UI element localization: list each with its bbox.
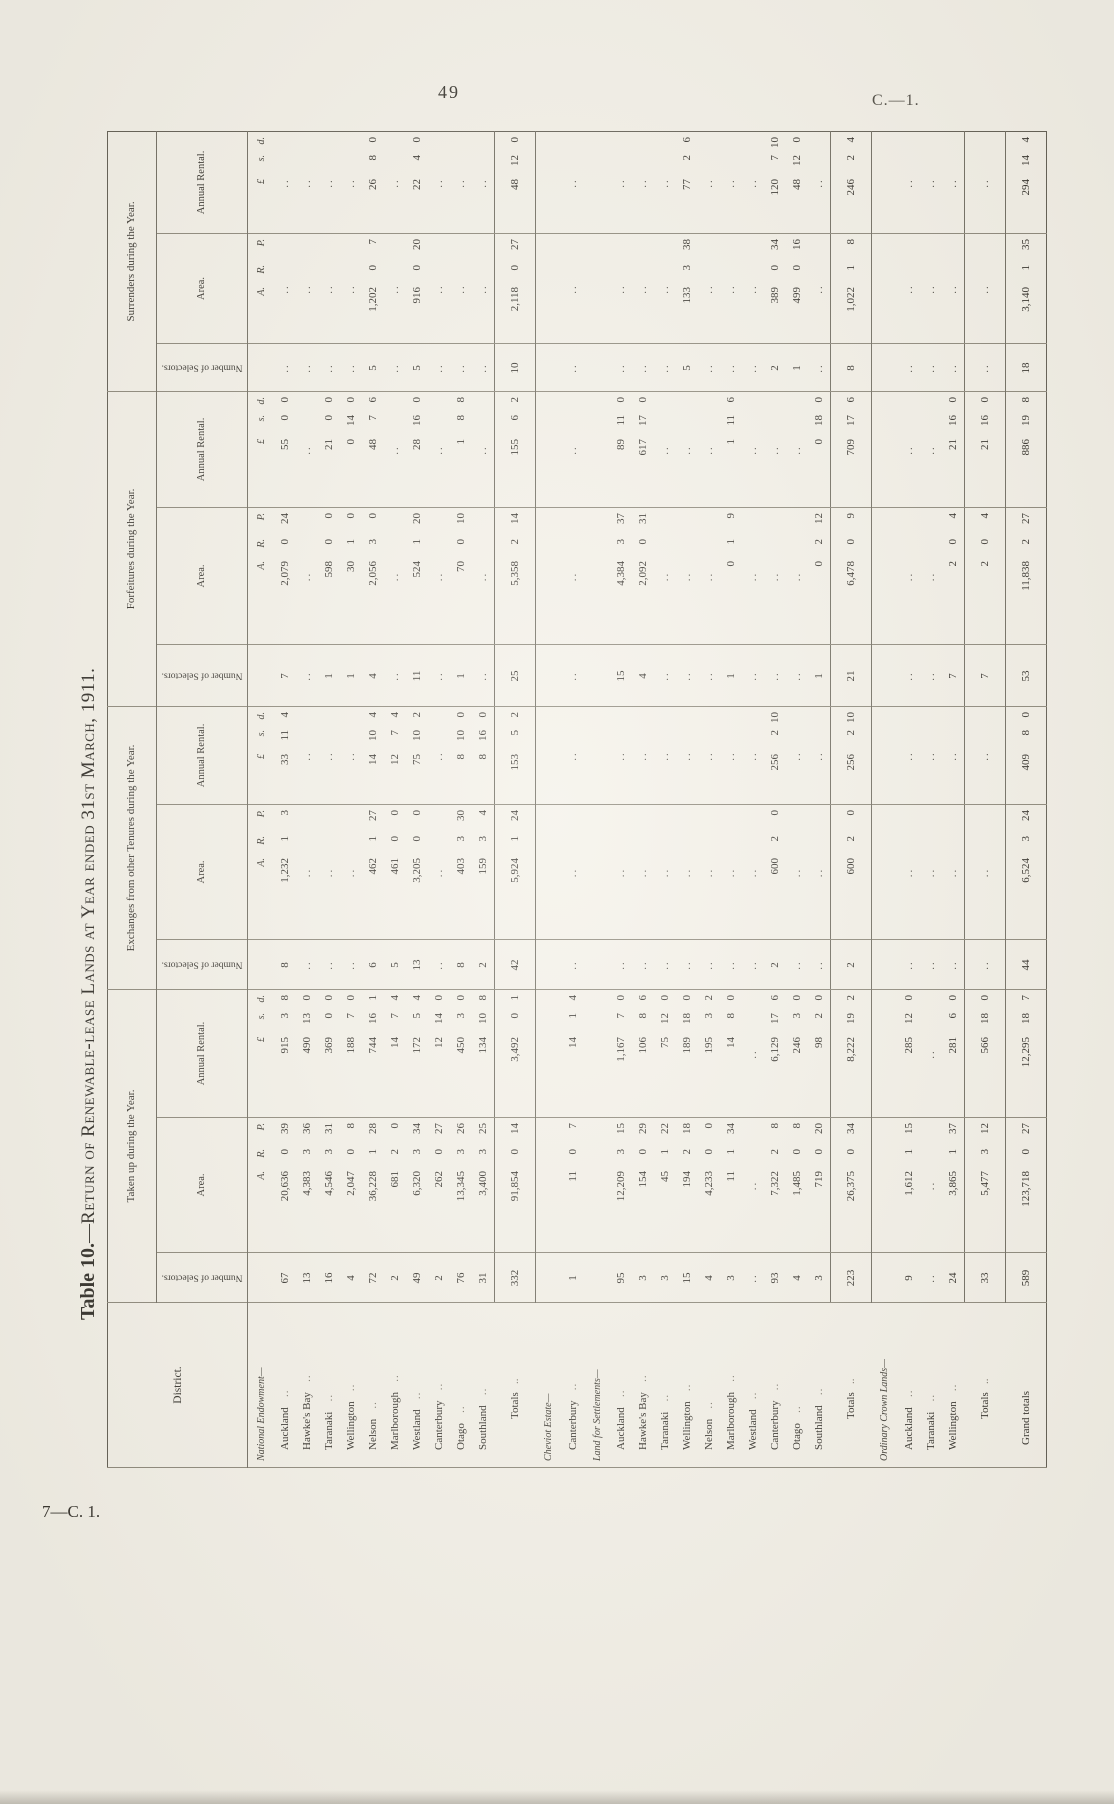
value-part: d. (256, 397, 267, 415)
value-part: 3 (279, 810, 291, 836)
row-label: Canterbury (562, 1303, 584, 1468)
table-cell: .. (742, 939, 764, 989)
value-part: 2 (845, 155, 857, 179)
value-part: 89 (615, 439, 627, 503)
value-part: 1 (367, 1149, 379, 1171)
value-part: 55 (279, 439, 291, 503)
table-cell: .. (786, 507, 808, 644)
vertical-header-text: Number of Selectors. (161, 959, 243, 970)
value-part: 2 (845, 995, 857, 1013)
table-cell: 1,02218 (831, 233, 872, 343)
value-part: 16 (791, 239, 803, 265)
value-part: 27 (433, 1123, 445, 1149)
table-cell (536, 343, 563, 391)
table-cell: .. (920, 939, 942, 989)
table-cell (872, 1253, 899, 1303)
table-cell: 134108 (472, 989, 495, 1117)
empty-cell-dots: .. (433, 810, 445, 935)
value-part: 0 (345, 439, 357, 503)
table-cell: .. (898, 644, 920, 706)
value-part: 7 (1020, 995, 1032, 1013)
table-cell: .. (742, 131, 764, 233)
empty-cell-dots: .. (301, 810, 313, 935)
value-part: 7,322 (769, 1171, 781, 1248)
table-cell (872, 131, 899, 233)
table-cell: 916020 (406, 233, 428, 343)
compound-value: 60020 (845, 810, 857, 935)
value-part: 12 (979, 1123, 991, 1149)
compound-value: 566180 (979, 995, 991, 1113)
table-row: Totals33291,8540143,49201425,92412415352… (495, 131, 536, 1467)
compound-value: 154029 (637, 1123, 649, 1248)
table-cell: .. (428, 391, 450, 507)
empty-cell-dots: .. (769, 650, 781, 702)
value-part: 6 (845, 397, 857, 415)
value-part: 3 (703, 1013, 715, 1037)
value-part: 98 (813, 1037, 825, 1113)
value-part: 0 (979, 397, 991, 415)
table-cell: 20,636039 (274, 1118, 296, 1253)
table-cell: 3 (654, 1253, 676, 1303)
empty-cell-dots: .. (703, 650, 715, 702)
value-part: 48 (509, 179, 521, 229)
value-part: 20 (411, 239, 423, 265)
table-cell: .. (384, 391, 406, 507)
table-cell: 76 (450, 1253, 472, 1303)
value-part: 15 (903, 1123, 915, 1149)
compound-value: 499016 (791, 239, 803, 339)
value-part: 2 (769, 730, 781, 754)
value-part: 14 (345, 415, 357, 439)
table-cell: .. (698, 939, 720, 989)
row-label: Nelson (698, 1303, 720, 1468)
compound-value: 8100 (455, 712, 467, 800)
empty-cell-dots: .. (979, 239, 991, 339)
value-part: 7 (389, 1013, 401, 1037)
value-part: 2,056 (367, 561, 379, 640)
table-cell: 3 (808, 1253, 831, 1303)
compound-value: 134108 (477, 995, 489, 1113)
table-cell: 4,23300 (698, 1118, 720, 1253)
value-part: 4 (367, 712, 379, 730)
value-part: 1 (279, 836, 291, 858)
table-cell: .. (676, 644, 698, 706)
empty-cell-dots: .. (813, 349, 825, 387)
row-label: Southland (472, 1303, 495, 1468)
table-cell: .. (742, 391, 764, 507)
table-cell: .. (340, 706, 362, 804)
empty-cell-dots: .. (681, 712, 693, 800)
table-cell: .. (898, 391, 920, 507)
table-cell: 0140 (340, 391, 362, 507)
table-cell: .. (340, 939, 362, 989)
value-part: 8 (477, 995, 489, 1013)
compound-value: 6,524324 (1020, 810, 1032, 935)
value-part: 8 (1020, 730, 1032, 754)
value-part: 0 (411, 137, 423, 155)
table-cell: .. (654, 391, 676, 507)
value-part: 3 (455, 836, 467, 858)
empty-cell-dots: .. (567, 945, 579, 985)
value-part: 22 (411, 179, 423, 229)
table-cell: .. (384, 131, 406, 233)
empty-cell-dots: .. (615, 945, 627, 985)
table-cell: .. (742, 989, 764, 1117)
table-cell: 256210 (764, 706, 786, 804)
value-part: 34 (725, 1123, 737, 1149)
row-label: Westland (406, 1303, 428, 1468)
value-part: 0 (1020, 712, 1032, 730)
value-part: 12 (433, 1037, 445, 1113)
row-label: Land for Settlements— (584, 1303, 610, 1468)
value-part: 6,320 (411, 1171, 423, 1248)
table-cell: .. (965, 233, 1006, 343)
value-part: 4 (477, 810, 489, 836)
table-cell: 019 (720, 507, 742, 644)
table-cell: 11 (406, 644, 428, 706)
row-label: Southland (808, 1303, 831, 1468)
compound-value: 21160 (979, 397, 991, 503)
empty-cell-dots: .. (567, 397, 579, 503)
compound-value: 1480 (725, 995, 737, 1113)
subheader-selectors-2: Number of Selectors. (157, 644, 248, 706)
value-part: 0 (659, 995, 671, 1013)
empty-cell-dots: .. (681, 650, 693, 702)
value-part: 36,228 (367, 1171, 379, 1248)
compound-value: 10686 (637, 995, 649, 1113)
value-part: 21 (947, 439, 959, 503)
value-part: 153 (509, 754, 521, 800)
table-cell: .. (898, 939, 920, 989)
row-label: Auckland (898, 1303, 920, 1468)
table-cell: 1 (786, 343, 808, 391)
compound-value: 12140 (433, 995, 445, 1113)
table-cell: .. (920, 706, 942, 804)
value-part: 12 (659, 1013, 671, 1037)
table-cell: .. (296, 706, 318, 804)
table-cell (584, 131, 610, 233)
empty-cell-dots: .. (433, 712, 445, 800)
table-cell: .. (632, 131, 654, 233)
table-cell: .. (898, 804, 920, 939)
table-row: Land for Settlements— (584, 131, 610, 1467)
value-part: 18 (681, 1013, 693, 1037)
value-part: 4 (389, 712, 401, 730)
table-cell: 10 (495, 343, 536, 391)
vertical-header-text: Number of Selectors. (161, 362, 243, 373)
table-cell (584, 343, 610, 391)
subheader-rental-3: Annual Rental. (157, 131, 248, 233)
table-cell: .. (296, 644, 318, 706)
table-cell: .. (428, 804, 450, 939)
empty-cell-dots: .. (301, 349, 313, 387)
value-part: 5,477 (979, 1171, 991, 1248)
table-cell: 12140 (428, 989, 450, 1117)
table-cell: .. (472, 343, 495, 391)
compound-value: A.R.P. (256, 513, 267, 640)
table-cell: .. (898, 343, 920, 391)
value-part: 566 (979, 1037, 991, 1113)
value-part: 11 (725, 415, 737, 439)
compound-value: 1107 (567, 1123, 579, 1248)
value-part: 0 (433, 995, 445, 1013)
table-cell: .. (720, 131, 742, 233)
table-row: Marlborough3111341480......10191116.....… (720, 131, 742, 1467)
value-part: 16 (367, 1013, 379, 1037)
value-part: £ (256, 1037, 267, 1113)
compound-value: 133338 (681, 239, 693, 339)
table-cell: 15 (676, 1253, 698, 1303)
value-part: 2 (411, 712, 423, 730)
table-cell: 91538 (274, 989, 296, 1117)
table-cell: .. (698, 644, 720, 706)
table-cell: A.R.P. (248, 233, 275, 343)
value-part: 48 (367, 439, 379, 503)
table-cell: 45030 (450, 989, 472, 1117)
value-part: 18 (1020, 1013, 1032, 1037)
compound-value: 1116 (725, 397, 737, 503)
row-label: National Endowment— (248, 1303, 275, 1468)
compound-value: 33114 (279, 712, 291, 800)
value-part: 0 (791, 265, 803, 287)
table-cell: 67 (274, 1253, 296, 1303)
table-cell: 12,209315 (610, 1118, 632, 1253)
empty-cell-dots: .. (747, 397, 759, 503)
value-part: 3,140 (1020, 287, 1032, 339)
value-part: 0 (845, 1149, 857, 1171)
table-cell: 49 (406, 1253, 428, 1303)
empty-cell-dots: .. (769, 513, 781, 640)
value-part: 0 (455, 995, 467, 1013)
table-cell: .. (296, 343, 318, 391)
compound-value: 462127 (367, 810, 379, 935)
table-cell: 60020 (831, 804, 872, 939)
value-part: 450 (455, 1037, 467, 1113)
table-cell: 6,129176 (764, 989, 786, 1117)
empty-cell-dots: .. (389, 397, 401, 503)
table-cell: 389034 (764, 233, 786, 343)
empty-cell-dots: .. (659, 349, 671, 387)
value-part: 16 (979, 415, 991, 439)
page-number: 49 (438, 82, 460, 103)
table-cell: 1,48508 (786, 1118, 808, 1253)
empty-cell-dots: .. (947, 239, 959, 339)
table-cell: .. (742, 706, 764, 804)
table-cell: .. (898, 507, 920, 644)
table-cell: 12,295187 (1006, 989, 1047, 1117)
table-cell: 719020 (808, 1118, 831, 1253)
empty-cell-dots: .. (747, 239, 759, 339)
table-cell: 223 (831, 1253, 872, 1303)
table-cell: 3 (632, 1253, 654, 1303)
value-part: 14 (389, 1037, 401, 1113)
empty-cell-dots: .. (747, 1123, 759, 1248)
value-part: 681 (389, 1171, 401, 1248)
row-label: Ordinary Crown Lands— (872, 1303, 899, 1468)
table-cell (584, 989, 610, 1117)
compound-value: 19532 (703, 995, 715, 1113)
table-cell: 256210 (831, 706, 872, 804)
table-cell: 2,092031 (632, 507, 654, 644)
table-cell: .. (742, 343, 764, 391)
table-cell: 48120 (786, 131, 808, 233)
table-cell: 886198 (1006, 391, 1047, 507)
table-cell: .. (742, 1253, 764, 1303)
table-cell: 17254 (406, 989, 428, 1117)
value-part: 3 (615, 1149, 627, 1171)
row-label: Hawke's Bay (632, 1303, 654, 1468)
table-cell: .. (450, 343, 472, 391)
table-cell: 9 (898, 1253, 920, 1303)
value-part: 29 (637, 1123, 649, 1149)
table-cell: 1 (450, 644, 472, 706)
value-part: 294 (1020, 179, 1032, 229)
value-part: 0 (637, 1149, 649, 1171)
value-part: 490 (301, 1037, 313, 1113)
empty-cell-dots: .. (925, 349, 937, 387)
value-part: 8 (279, 995, 291, 1013)
compound-value: 3,865137 (947, 1123, 959, 1248)
value-part: 1 (345, 539, 357, 561)
value-part: 20 (813, 1123, 825, 1149)
value-part: 28 (411, 439, 423, 503)
value-part: 3 (323, 1149, 335, 1171)
table-cell: 1 (318, 644, 340, 706)
value-part: 6 (509, 415, 521, 439)
empty-cell-dots: .. (925, 513, 937, 640)
table-cell: 1 (808, 644, 831, 706)
empty-cell-dots: .. (769, 397, 781, 503)
table-cell: 1 (720, 644, 742, 706)
table-cell (872, 989, 899, 1117)
value-part: 14 (509, 1123, 521, 1149)
value-part: 14 (367, 754, 379, 800)
empty-cell-dots: .. (345, 712, 357, 800)
empty-cell-dots: .. (389, 239, 401, 339)
empty-cell-dots: .. (947, 810, 959, 935)
value-part: 14 (725, 1037, 737, 1113)
value-part: 0 (845, 539, 857, 561)
row-label: Otago (450, 1303, 472, 1468)
value-part: 8 (845, 239, 857, 265)
compound-value: A.R.P. (256, 239, 267, 339)
value-part: 0 (279, 539, 291, 561)
table-row: Southland313,4003251341082159348160.....… (472, 131, 495, 1467)
table-cell (584, 706, 610, 804)
table-cell: 2,04708 (340, 1118, 362, 1253)
table-cell (584, 939, 610, 989)
table-cell: 31 (472, 1253, 495, 1303)
value-part: 0 (845, 810, 857, 836)
value-part: 12 (791, 155, 803, 179)
empty-cell-dots: .. (637, 137, 649, 229)
compound-value: 294144 (1020, 137, 1032, 229)
value-part: 12,209 (615, 1171, 627, 1248)
value-part: 0 (323, 539, 335, 561)
empty-cell-dots: .. (433, 397, 445, 503)
value-part: 8 (477, 754, 489, 800)
value-part: A. (256, 561, 267, 640)
value-part: 524 (411, 561, 423, 640)
table-row: Taranaki164,54633136900......1598002100.… (318, 131, 340, 1467)
rotated-table-sheet: Table 10.—Return of Renewable-lease Land… (77, 128, 975, 1468)
table-cell: .. (720, 706, 742, 804)
table-cell: 21 (831, 644, 872, 706)
value-part: 719 (813, 1171, 825, 1248)
value-part: A. (256, 287, 267, 339)
compound-value: 36900 (323, 995, 335, 1113)
value-part: R. (256, 1149, 267, 1171)
value-part: 8 (725, 1013, 737, 1037)
compound-value: 89110 (615, 397, 627, 503)
table-row: Nelson7236,22812874416164621271410442,05… (362, 131, 384, 1467)
table-cell: 11,838227 (1006, 507, 1047, 644)
empty-cell-dots: .. (279, 349, 291, 387)
compound-value: 617170 (637, 397, 649, 503)
value-part: 195 (703, 1037, 715, 1113)
compound-value: 6,47809 (845, 513, 857, 640)
value-part: 1 (509, 995, 521, 1013)
empty-cell-dots: .. (903, 712, 915, 800)
value-part: 0 (903, 995, 915, 1013)
value-part: 70 (455, 561, 467, 640)
value-part: 6 (637, 995, 649, 1013)
value-part: 2 (813, 1013, 825, 1037)
table-cell: .. (384, 343, 406, 391)
value-part: 4 (567, 995, 579, 1013)
table-cell: 9820 (808, 989, 831, 1117)
value-part: 462 (367, 858, 379, 935)
row-label: Totals (831, 1303, 872, 1468)
value-part: 11 (615, 415, 627, 439)
compound-value: 744161 (367, 995, 379, 1113)
empty-cell-dots: .. (659, 137, 671, 229)
table-cell: .. (632, 706, 654, 804)
value-part: 10 (845, 712, 857, 730)
value-part: 1 (455, 439, 467, 503)
table-cell: 19532 (698, 989, 720, 1117)
compound-value: 75120 (659, 995, 671, 1113)
table-row: Totals22326,3750348,22219226002025621021… (831, 131, 872, 1467)
table-cell: 28160 (942, 989, 965, 1117)
compound-value: 1,20207 (367, 239, 379, 339)
table-row: Taranaki........................ (920, 131, 942, 1467)
table-cell: 5 (676, 343, 698, 391)
compound-value: 75102 (411, 712, 423, 800)
table-cell: .. (296, 233, 318, 343)
empty-cell-dots: .. (925, 1258, 937, 1298)
compound-value: 189180 (681, 995, 693, 1113)
value-part: 0 (769, 810, 781, 836)
table-cell: 36900 (318, 989, 340, 1117)
empty-cell-dots: .. (703, 239, 715, 339)
compound-value: 12,209315 (615, 1123, 627, 1248)
empty-cell-dots: .. (567, 137, 579, 229)
table-cell: 8160 (472, 706, 495, 804)
empty-cell-dots: .. (433, 945, 445, 985)
value-part: 2 (681, 1149, 693, 1171)
table-row: Marlborough26812014745461001274.........… (384, 131, 406, 1467)
row-label: Nelson (362, 1303, 384, 1468)
value-part: 1 (1020, 265, 1032, 287)
table-cell: .. (742, 804, 764, 939)
empty-cell-dots: .. (637, 349, 649, 387)
table-cell: 3,49201 (495, 989, 536, 1117)
value-part: 34 (769, 239, 781, 265)
empty-cell-dots: .. (925, 650, 937, 702)
table-cell: .. (274, 343, 296, 391)
table-row: Auckland6720,6360399153881,232133311472,… (274, 131, 296, 1467)
